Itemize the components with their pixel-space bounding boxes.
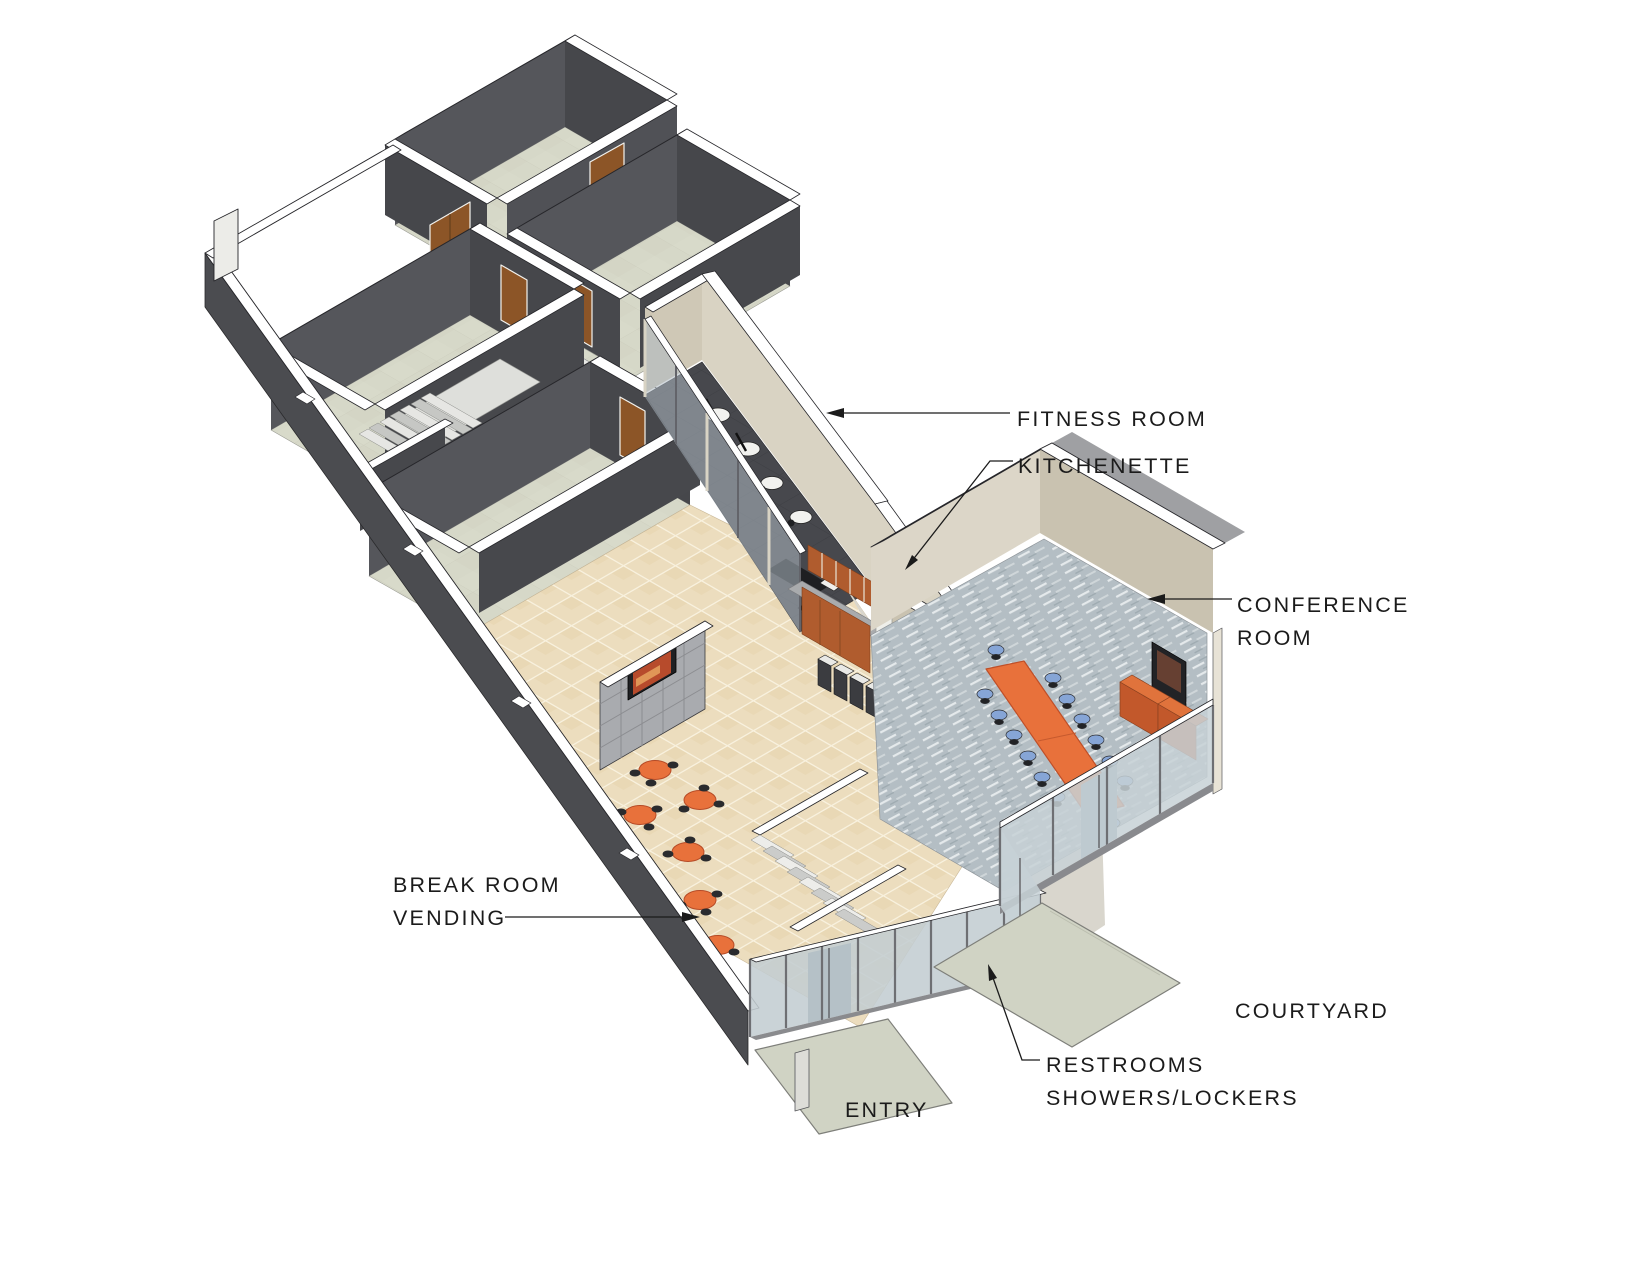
label-break-room-line2: VENDING xyxy=(393,902,561,935)
label-break-room-line1: BREAK ROOM xyxy=(393,869,561,902)
floor-plan-rendering: FITNESS ROOM KITCHENETTE CONFERENCE ROOM… xyxy=(0,0,1650,1275)
label-conference-room-line2: ROOM xyxy=(1237,622,1410,655)
label-courtyard: COURTYARD xyxy=(1235,995,1389,1028)
label-fitness-room: FITNESS ROOM xyxy=(1017,403,1207,436)
wall-end-cap xyxy=(214,209,238,281)
arrowhead-fitness-room xyxy=(826,408,844,418)
label-restrooms-line2: SHOWERS/LOCKERS xyxy=(1046,1082,1299,1115)
label-restrooms: RESTROOMS SHOWERS/LOCKERS xyxy=(1046,1049,1299,1115)
entry-wall-stub xyxy=(795,1049,809,1111)
label-conference-room: CONFERENCE ROOM xyxy=(1237,589,1410,655)
label-entry: ENTRY xyxy=(845,1094,928,1127)
label-conference-room-line1: CONFERENCE xyxy=(1237,589,1410,622)
label-break-room: BREAK ROOM VENDING xyxy=(393,869,561,935)
label-kitchenette: KITCHENETTE xyxy=(1018,450,1192,483)
label-restrooms-line1: RESTROOMS xyxy=(1046,1049,1299,1082)
